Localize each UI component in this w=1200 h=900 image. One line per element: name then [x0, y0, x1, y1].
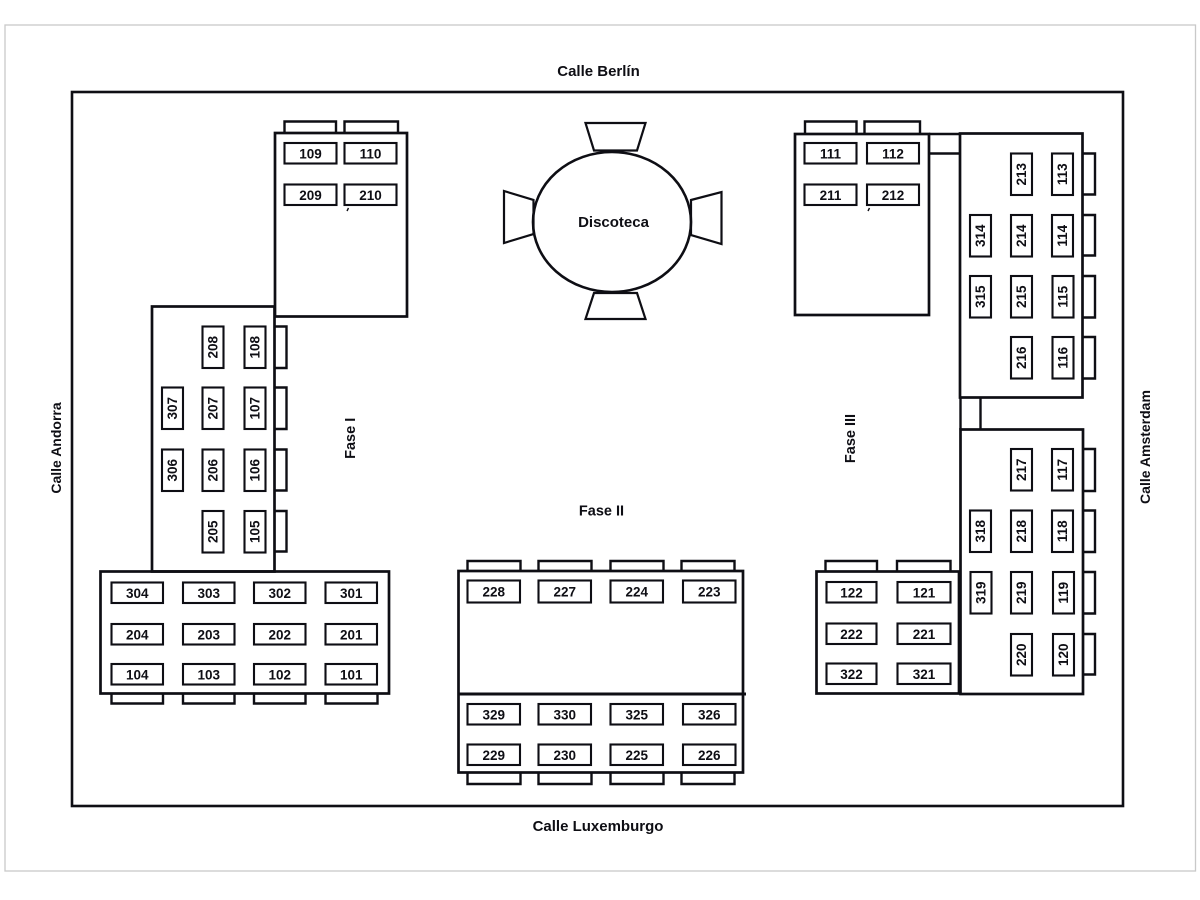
svg-text:203: 203 [197, 627, 220, 642]
svg-text:208: 208 [206, 335, 221, 358]
svg-text:227: 227 [553, 585, 576, 600]
svg-text:Fase II: Fase II [579, 504, 624, 520]
svg-text:223: 223 [698, 585, 721, 600]
svg-text:220: 220 [1014, 643, 1029, 666]
svg-text:319: 319 [974, 581, 989, 604]
svg-text:114: 114 [1055, 224, 1070, 246]
svg-text:116: 116 [1056, 346, 1071, 368]
svg-text:209: 209 [299, 188, 322, 203]
svg-text:Discoteca: Discoteca [578, 214, 650, 231]
svg-text:314: 314 [973, 224, 988, 247]
svg-text:301: 301 [340, 586, 363, 601]
svg-text:201: 201 [340, 627, 363, 642]
svg-text:104: 104 [126, 667, 149, 682]
svg-text:221: 221 [913, 627, 936, 642]
svg-text:207: 207 [206, 397, 221, 420]
svg-text:222: 222 [840, 627, 863, 642]
svg-text:107: 107 [248, 397, 263, 420]
svg-text:Calle Andorra: Calle Andorra [48, 402, 64, 493]
svg-text:306: 306 [165, 458, 180, 481]
svg-text:218: 218 [1014, 519, 1029, 542]
svg-text:219: 219 [1014, 581, 1029, 604]
svg-text:322: 322 [840, 667, 863, 682]
svg-text:304: 304 [126, 586, 149, 601]
svg-text:120: 120 [1056, 643, 1071, 666]
svg-text:115: 115 [1056, 285, 1071, 307]
svg-text:228: 228 [482, 585, 505, 600]
svg-text:321: 321 [913, 667, 936, 682]
svg-text:103: 103 [197, 667, 220, 682]
svg-text:325: 325 [625, 707, 648, 722]
svg-text:101: 101 [340, 667, 363, 682]
svg-text:229: 229 [482, 748, 505, 763]
svg-text:108: 108 [248, 335, 263, 358]
svg-text:213: 213 [1014, 162, 1029, 185]
svg-text:302: 302 [268, 586, 291, 601]
svg-text:225: 225 [625, 748, 648, 763]
svg-text:110: 110 [360, 146, 382, 161]
svg-text:Calle Luxemburgo: Calle Luxemburgo [533, 818, 664, 835]
svg-text:205: 205 [206, 520, 221, 543]
svg-text:Fase I: Fase I [343, 418, 359, 459]
svg-text:111: 111 [820, 146, 842, 161]
svg-text:214: 214 [1014, 224, 1029, 247]
svg-text:326: 326 [698, 707, 721, 722]
svg-text:118: 118 [1055, 520, 1070, 542]
svg-text:212: 212 [882, 188, 905, 203]
svg-text:105: 105 [248, 520, 263, 543]
svg-text:315: 315 [973, 285, 988, 308]
svg-text:329: 329 [482, 707, 505, 722]
svg-text:224: 224 [625, 585, 648, 600]
svg-text:112: 112 [882, 146, 904, 161]
svg-text:303: 303 [197, 586, 220, 601]
svg-text:Calle Berlín: Calle Berlín [557, 63, 640, 80]
svg-text:211: 211 [820, 188, 842, 203]
svg-text:Fase III: Fase III [843, 414, 859, 463]
svg-text:109: 109 [299, 146, 322, 161]
svg-text:106: 106 [248, 458, 263, 481]
svg-text:117: 117 [1055, 459, 1070, 481]
svg-text:204: 204 [126, 627, 149, 642]
svg-text:215: 215 [1014, 285, 1029, 308]
svg-text:202: 202 [268, 627, 291, 642]
svg-text:206: 206 [206, 458, 221, 481]
svg-text:307: 307 [165, 397, 180, 420]
svg-text:210: 210 [359, 188, 382, 203]
svg-text:119: 119 [1056, 582, 1071, 604]
svg-text:226: 226 [698, 748, 721, 763]
svg-text:122: 122 [840, 585, 863, 600]
svg-text:217: 217 [1014, 458, 1029, 481]
svg-text:113: 113 [1055, 163, 1070, 185]
svg-text:318: 318 [973, 519, 988, 542]
svg-text:216: 216 [1014, 346, 1029, 369]
svg-text:230: 230 [553, 748, 576, 763]
svg-text:102: 102 [268, 667, 291, 682]
svg-text:121: 121 [913, 585, 936, 600]
svg-text:Calle Amsterdam: Calle Amsterdam [1137, 390, 1153, 504]
svg-text:330: 330 [553, 707, 576, 722]
